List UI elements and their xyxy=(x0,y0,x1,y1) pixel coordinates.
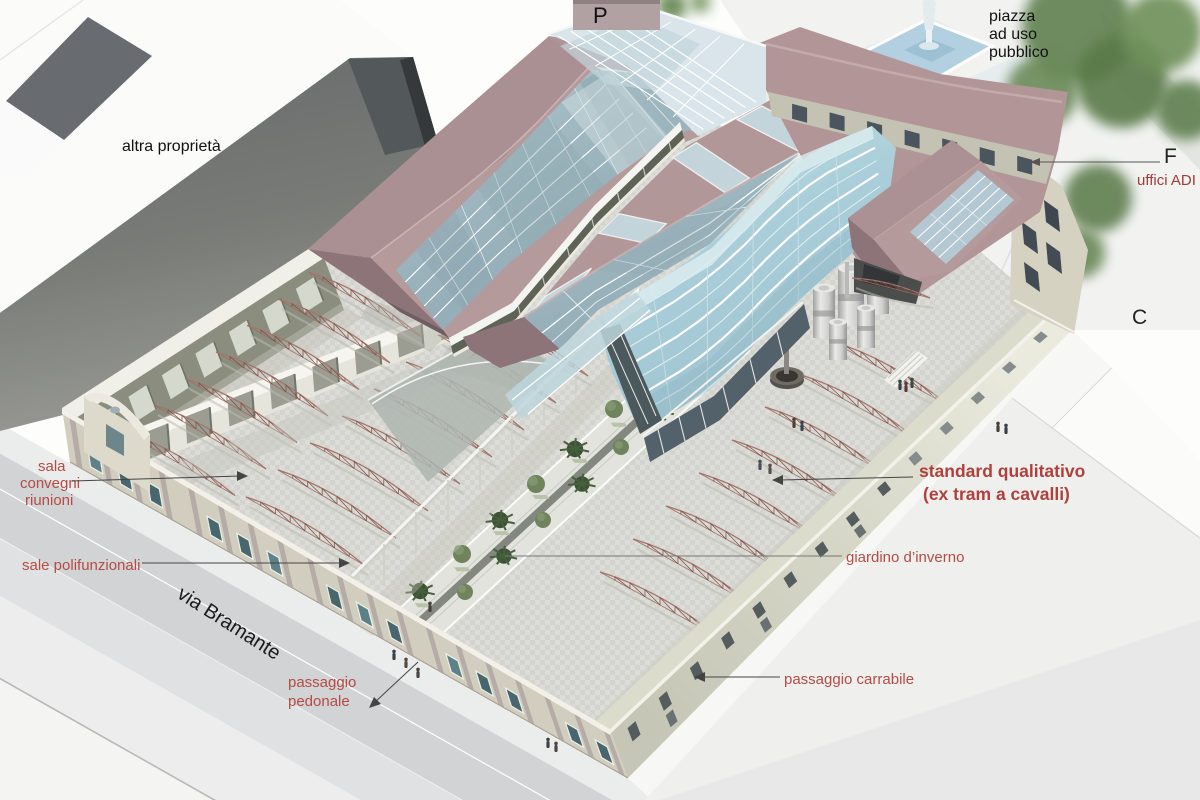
svg-text:giardino d’inverno: giardino d’inverno xyxy=(846,549,964,566)
svg-text:pedonale: pedonale xyxy=(288,693,350,710)
svg-text:riunioni: riunioni xyxy=(25,492,73,509)
svg-text:piazza: piazza xyxy=(989,8,1035,25)
svg-text:pubblico: pubblico xyxy=(989,44,1049,61)
svg-text:ad uso: ad uso xyxy=(989,26,1037,43)
svg-text:uffici ADI: uffici ADI xyxy=(1137,172,1196,189)
svg-text:sale polifunzionali: sale polifunzionali xyxy=(22,557,140,574)
svg-text:C: C xyxy=(1132,306,1147,329)
svg-text:F: F xyxy=(1164,145,1177,168)
svg-text:convegni: convegni xyxy=(20,475,80,492)
svg-text:standard qualitativo: standard qualitativo xyxy=(919,461,1085,481)
svg-text:(ex tram a cavalli): (ex tram a cavalli) xyxy=(923,484,1070,504)
svg-text:P: P xyxy=(593,3,608,28)
svg-text:sala: sala xyxy=(38,458,66,475)
svg-text:altra proprietà: altra proprietà xyxy=(122,138,221,155)
svg-text:passaggio carrabile: passaggio carrabile xyxy=(784,671,914,688)
svg-text:passaggio: passaggio xyxy=(288,674,356,691)
